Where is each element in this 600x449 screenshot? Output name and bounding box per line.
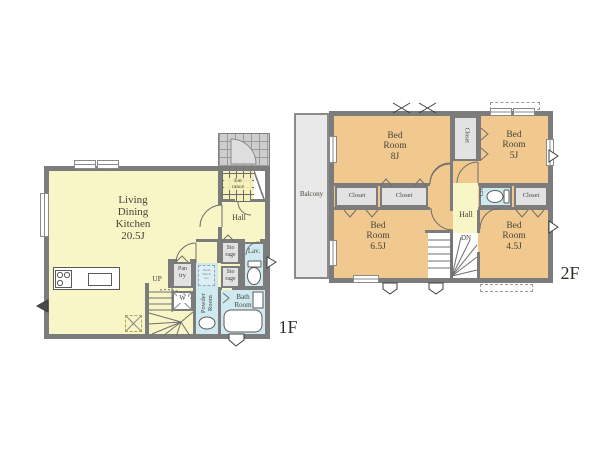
stairs-up-label: UP [146, 275, 168, 283]
room-label-bath: Bath Room [227, 294, 259, 309]
wall [478, 116, 481, 161]
window [329, 136, 337, 163]
window [329, 240, 337, 266]
window [513, 108, 535, 116]
wall [193, 263, 196, 334]
kitchen-sink-icon [88, 273, 112, 286]
room-label-bed65: Bed Room 6.5J [348, 221, 408, 252]
room-label-powder: Powder Room [200, 282, 214, 324]
hall-2f-label: Hall [453, 211, 479, 220]
room-label-bed5: Bed Room 5J [484, 130, 544, 161]
room-label-bed45: Bed Room 4.5J [484, 221, 544, 252]
window [353, 275, 379, 283]
room-label-hall-1f: Hall [226, 214, 252, 223]
wall [450, 183, 453, 211]
wall [478, 207, 548, 210]
room-label-lav-1f: Lav. [244, 248, 264, 256]
window [97, 160, 119, 169]
lav-2f-label: Lav [479, 179, 485, 205]
hall-2f [453, 183, 478, 235]
room-label-storage-top: Sto rage [222, 245, 239, 258]
wall [334, 207, 430, 210]
window [490, 108, 512, 116]
room-label-bed8: Bed Room 8J [365, 131, 425, 162]
room-label-washer: W [177, 295, 188, 303]
closet-right-label: Closet [513, 192, 549, 199]
room-label-ldk: Living Dining Kitchen 20.5J [83, 194, 183, 242]
room-label-pantry: Pan try [173, 266, 192, 279]
floor-hatch [125, 315, 142, 332]
room-label-washer-space: Wash Mach ine [199, 268, 214, 281]
wall [145, 283, 149, 337]
entrance-porch [218, 133, 270, 167]
floorplan-canvas: Living Dining Kitchen 20.5J Ent rance Ha… [0, 0, 600, 449]
room-label-storage-bottom: Sto rage [222, 269, 239, 282]
wall [477, 252, 480, 278]
floor-label-1f: 1F [273, 318, 303, 338]
room-label-entrance: Ent rance [224, 178, 252, 190]
wall [222, 199, 235, 202]
stove-icon [55, 270, 72, 288]
balcony-label: Balcony [296, 191, 327, 199]
closet-left-label: Closet [339, 192, 375, 199]
floor-label-2f: 2F [554, 264, 586, 284]
wall [250, 199, 265, 202]
wall [450, 230, 453, 278]
ac-unit-dashed [480, 284, 533, 292]
window [74, 160, 96, 169]
wall [425, 230, 453, 233]
window [40, 193, 49, 237]
shoe-storage-corner [254, 171, 265, 202]
closet-center-label: Closet [463, 117, 470, 153]
stairs-dn-label: DN [455, 235, 477, 243]
wall [218, 290, 221, 334]
closet-mid-label: Closet [386, 192, 422, 199]
window [546, 139, 554, 166]
